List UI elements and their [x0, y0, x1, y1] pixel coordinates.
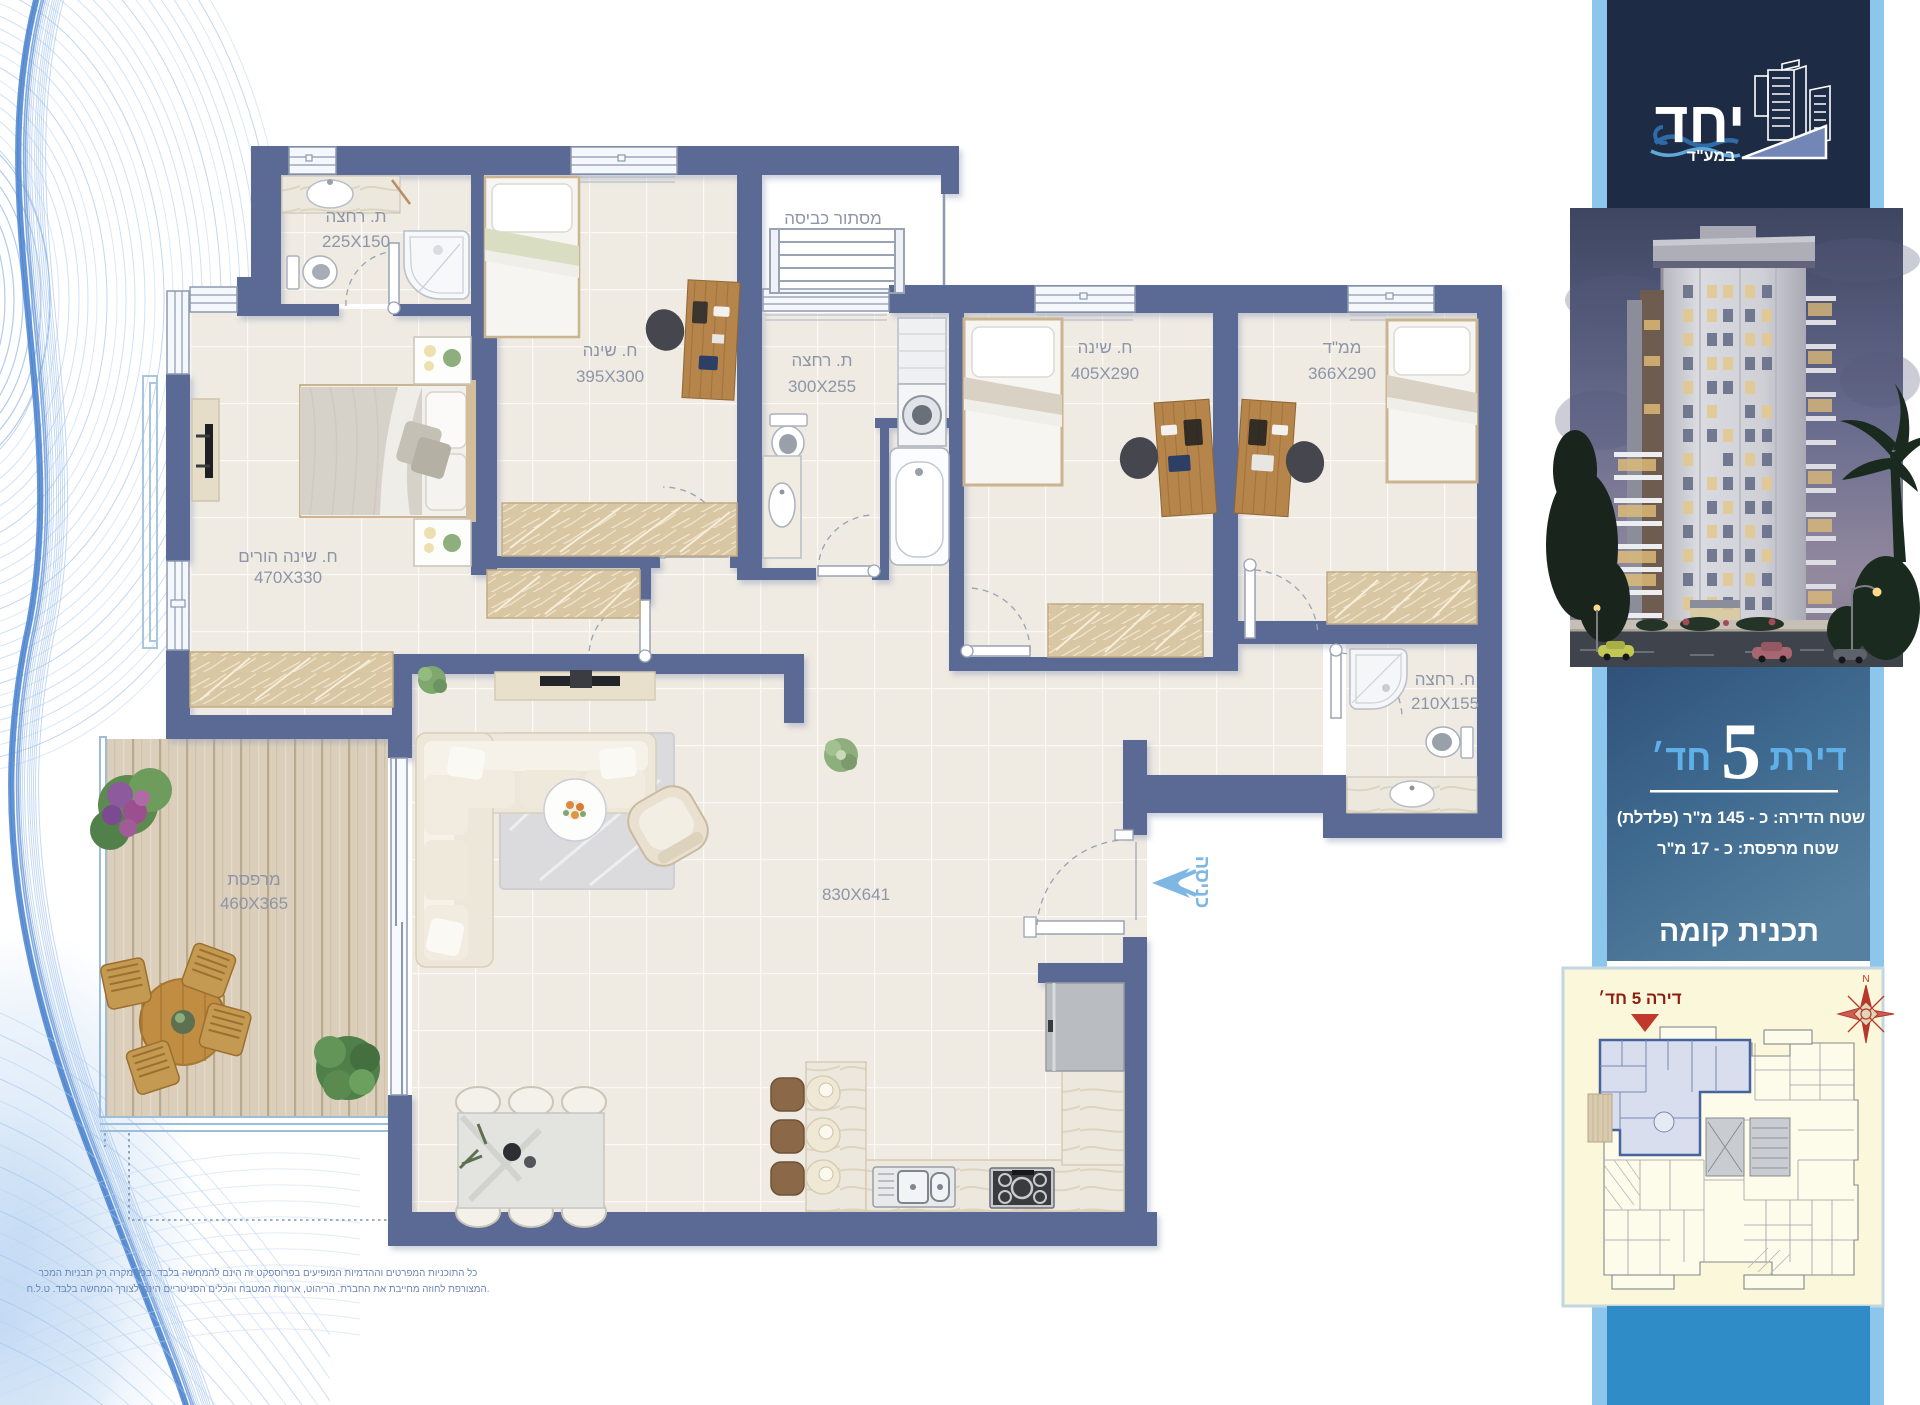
svg-text:המצורפת לחוזה מחייבת את החברת.: המצורפת לחוזה מחייבת את החברת. הריהוט, א…: [27, 1283, 490, 1295]
svg-text:ח. שינה הורים: ח. שינה הורים: [238, 547, 337, 566]
svg-text:שטח מרפסת:‏ כ - 17 מ"ר: שטח מרפסת:‏ כ - 17 מ"ר: [1657, 840, 1839, 858]
svg-text:ח. שינה: ח. שינה: [1078, 338, 1133, 357]
svg-text:210X155: 210X155: [1411, 694, 1479, 713]
svg-text:405X290: 405X290: [1071, 364, 1139, 383]
svg-text:ת. רחצה: ת. רחצה: [326, 207, 387, 226]
svg-text:דירת: דירת: [1769, 737, 1846, 778]
svg-text:5: 5: [1721, 708, 1761, 796]
svg-text:מרפסת: מרפסת: [227, 870, 280, 889]
svg-text:460X365: 460X365: [220, 894, 288, 913]
svg-text:שטח הדירה:‏ כ - 145 מ"ר (פלד: שטח הדירה:‏ כ - 145 מ"ר (פלדלת): [1617, 809, 1865, 827]
svg-text:כניסה: כניסה: [1191, 856, 1213, 909]
svg-text:395X300: 395X300: [576, 367, 644, 386]
svg-text:חד׳: חד׳: [1651, 737, 1712, 778]
svg-text:במע"ד: במע"ד: [1687, 148, 1736, 165]
svg-text:ח. רחצה: ח. רחצה: [1415, 670, 1475, 689]
svg-text:N: N: [1862, 974, 1869, 985]
svg-text:ת. רחצה: ת. רחצה: [792, 351, 853, 370]
svg-text:470X330: 470X330: [254, 568, 322, 587]
svg-text:ח. שינה: ח. שינה: [583, 341, 638, 360]
svg-text:תכנית קומה: תכנית קומה: [1659, 915, 1819, 948]
svg-text:300X255: 300X255: [788, 377, 856, 396]
svg-text:ממ"ד: ממ"ד: [1323, 338, 1362, 357]
svg-text:366X290: 366X290: [1308, 364, 1376, 383]
svg-text:יחד: יחד: [1655, 90, 1746, 155]
svg-text:225X150: 225X150: [322, 232, 390, 251]
svg-text:כל התוכניות המפרטים וההדמיות ה: כל התוכניות המפרטים וההדמיות המופיעים בפ…: [39, 1267, 478, 1279]
svg-text:דירה 5 חד׳: דירה 5 חד׳: [1598, 989, 1682, 1008]
svg-text:מסתור כביסה: מסתור כביסה: [784, 209, 882, 228]
svg-text:830X641: 830X641: [822, 885, 890, 904]
